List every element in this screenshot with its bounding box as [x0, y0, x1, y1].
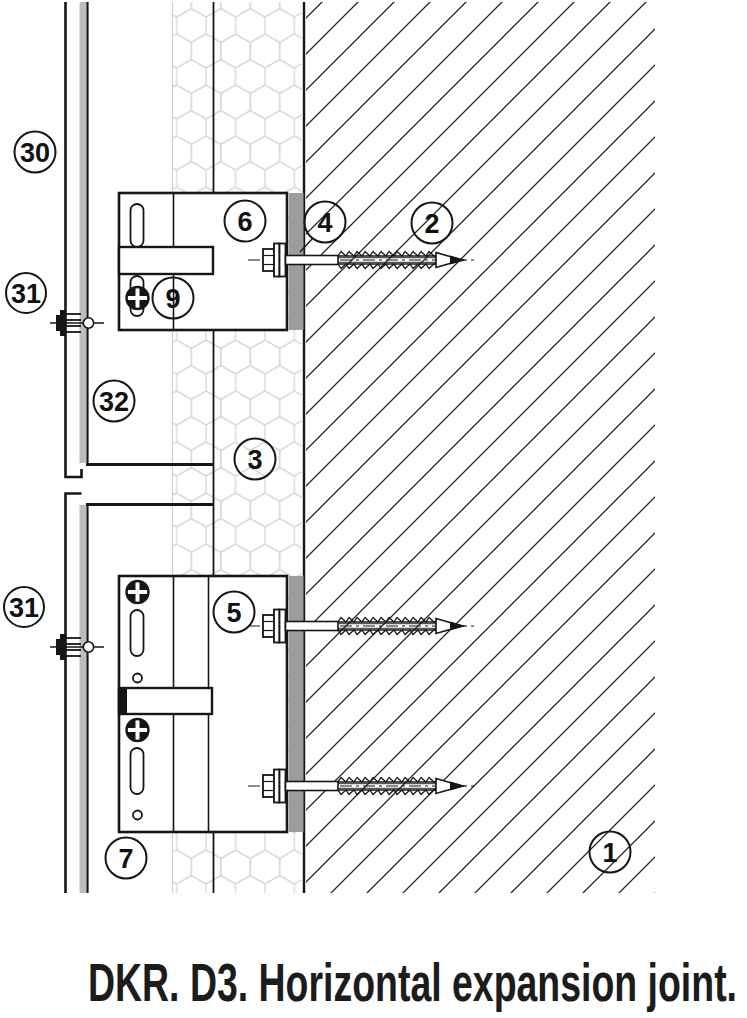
adjustment-bar-end-seal — [119, 688, 127, 714]
callout-31-upper-label: 31 — [11, 279, 41, 309]
rail-strip-upper — [80, 2, 87, 463]
callout-7: 7 — [106, 838, 147, 879]
drawing-caption: DKR. D3. Horizontal expansion joint. — [88, 952, 737, 1012]
callout-30: 30 — [15, 132, 56, 173]
callout-5-label: 5 — [226, 598, 241, 628]
cladding-panel-upper — [66, 2, 88, 477]
callout-1-label: 1 — [602, 838, 617, 868]
bracket-upper-slot-1 — [131, 204, 144, 247]
panel-line-upper — [66, 2, 82, 477]
rivet-icon — [127, 287, 149, 309]
callout-4-label: 4 — [317, 208, 332, 238]
bracket-lower-slot-1 — [131, 610, 144, 656]
adjustment-bar-upper — [119, 247, 213, 274]
callout-9-label: 9 — [165, 284, 180, 314]
callout-7-label: 7 — [118, 844, 133, 874]
wall-hatch-fill — [306, 2, 655, 893]
panel-screw-upper — [50, 310, 104, 336]
rail-strip-lower — [80, 505, 87, 893]
bracket-lower-hole-2 — [133, 811, 142, 820]
rivet-icon — [127, 581, 149, 603]
callout-31-lower: 31 — [4, 587, 44, 627]
panel-line-lower — [66, 494, 82, 894]
callout-30-label: 30 — [20, 138, 50, 168]
rivet-icon — [127, 719, 149, 741]
callout-32: 32 — [94, 381, 135, 422]
drawing-page: 30 31 32 31 6 9 4 2 — [0, 0, 747, 1018]
cladding-panel-lower — [66, 494, 88, 894]
callout-31-lower-label: 31 — [9, 593, 39, 623]
panel-screw-lower — [50, 634, 104, 660]
adjustment-bar-lower — [119, 688, 212, 714]
thermal-pad-lower — [289, 576, 304, 832]
drawing-canvas: 30 31 32 31 6 9 4 2 — [0, 0, 747, 1018]
callout-31-upper: 31 — [6, 273, 46, 313]
bracket-lower-slot-2 — [131, 748, 144, 794]
bracket-upper — [119, 193, 287, 330]
bracket-lower-hole-1 — [133, 674, 142, 683]
callout-6-label: 6 — [237, 207, 252, 237]
wall-section — [304, 2, 655, 893]
callout-2-label: 2 — [424, 209, 439, 239]
callout-32-label: 32 — [99, 387, 129, 417]
callout-3-label: 3 — [247, 445, 262, 475]
bracket-lower — [119, 576, 287, 832]
